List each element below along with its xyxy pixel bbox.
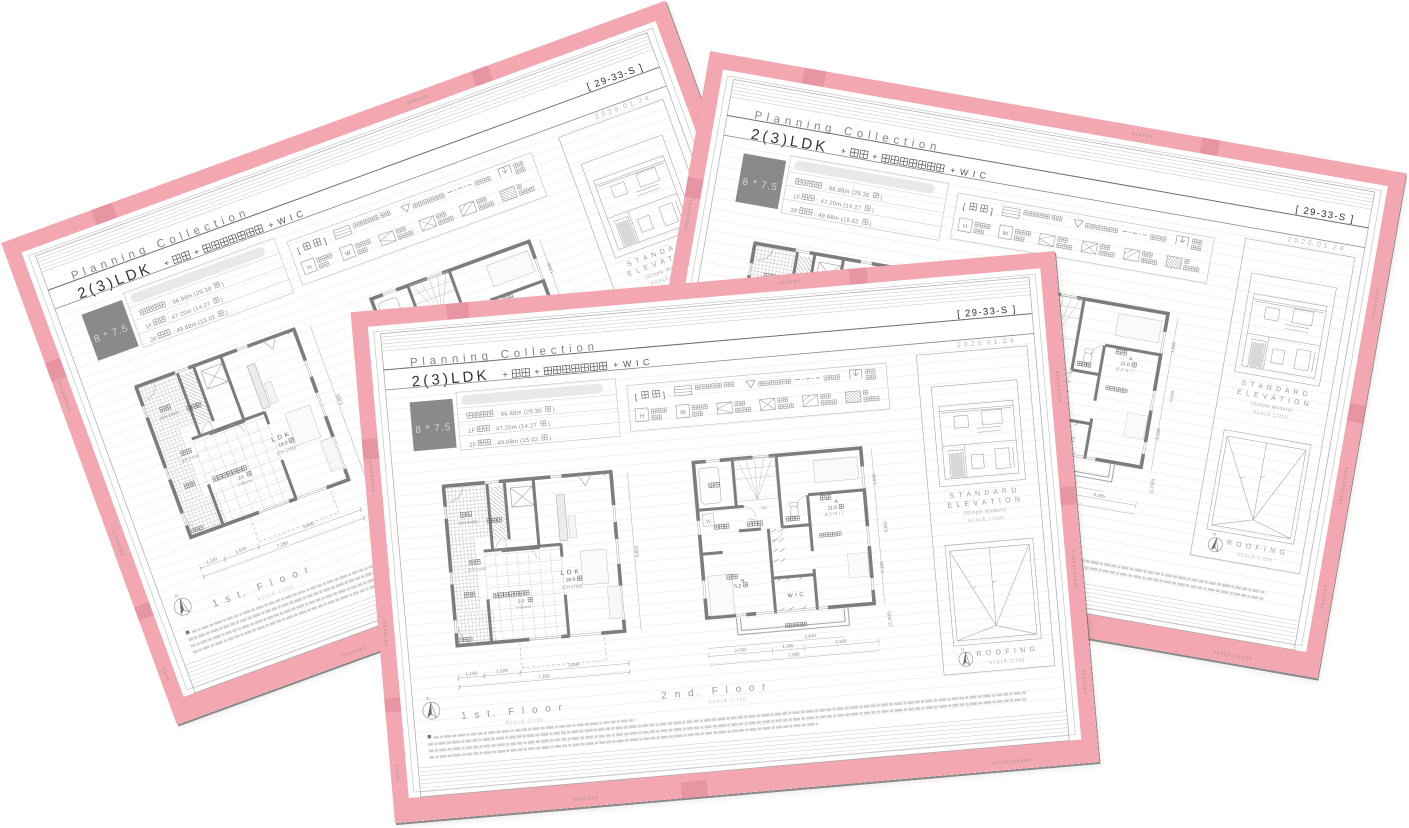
svg-text:2F: 2F — [790, 208, 798, 215]
svg-text:B: B — [741, 578, 745, 584]
svg-text:H: H — [640, 414, 645, 420]
svg-text:+: + — [613, 360, 619, 370]
svg-text:1,120: 1,120 — [465, 671, 477, 677]
svg-text:3,185: 3,185 — [835, 638, 847, 644]
svg-text:6,825: 6,825 — [634, 545, 640, 557]
svg-text:1,520: 1,520 — [496, 668, 508, 674]
svg-text:1F: 1F — [792, 194, 800, 201]
svg-text:16.0: 16.0 — [565, 577, 575, 584]
svg-text:DN: DN — [761, 506, 767, 510]
svg-text:1F: 1F — [468, 428, 476, 435]
svg-text:2,730: 2,730 — [734, 647, 746, 653]
svg-text:1,640: 1,640 — [871, 473, 877, 485]
svg-text:1,365: 1,365 — [782, 643, 794, 649]
svg-text:1,640: 1,640 — [804, 633, 816, 639]
svg-text:5.2: 5.2 — [734, 583, 742, 590]
svg-text:3.0: 3.0 — [518, 598, 525, 604]
svg-text:+: + — [502, 369, 508, 379]
svg-text:N: N — [961, 646, 964, 651]
svg-text:3,185: 3,185 — [879, 561, 885, 573]
svg-text:3,640: 3,640 — [568, 662, 580, 668]
svg-text:W: W — [680, 410, 686, 416]
svg-text:7,280: 7,280 — [788, 652, 800, 658]
svg-text:W: W — [706, 519, 712, 525]
svg-text:2F: 2F — [469, 442, 477, 449]
svg-text:6,825: 6,825 — [883, 520, 889, 532]
svg-text:7,280: 7,280 — [538, 673, 550, 679]
svg-text:+: + — [534, 367, 540, 377]
svg-text:N: N — [426, 696, 430, 701]
